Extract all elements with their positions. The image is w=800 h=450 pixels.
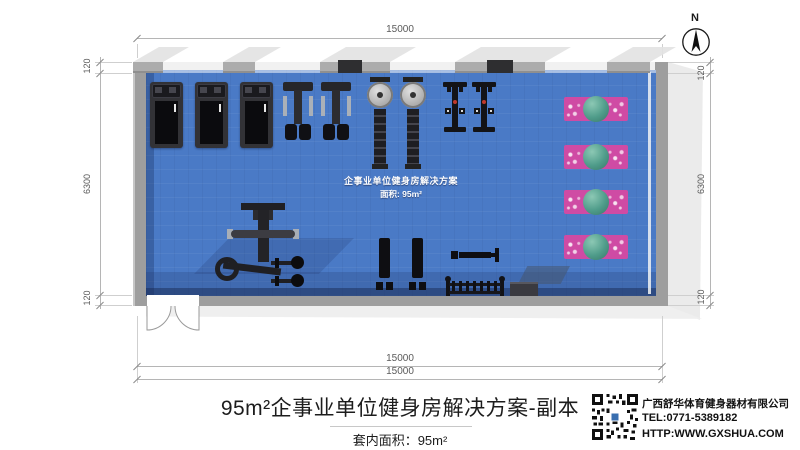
- floor-edge-line: [648, 72, 651, 294]
- wall-beam: [133, 62, 163, 73]
- ac-unit: [338, 60, 362, 73]
- step-platform: [510, 282, 538, 296]
- dimension-value-top: 15000: [360, 24, 440, 35]
- beam-shadow: [607, 47, 676, 62]
- double-door[interactable]: [146, 295, 202, 333]
- north-arrow-icon: [681, 27, 711, 57]
- strength-machine: [321, 82, 351, 144]
- flat-bench: [409, 238, 426, 294]
- dimension-value-bottom-2: 15000: [360, 366, 440, 377]
- exercise-ball: [583, 96, 609, 122]
- dimension-line: [137, 38, 662, 39]
- rowing-machine: [399, 77, 427, 169]
- dimension-value-bottom-1: 15000: [360, 353, 440, 364]
- floor-plan-label: 企事业单位健身房解决方案 面积: 95m²: [301, 174, 501, 200]
- spin-bike: [442, 82, 468, 134]
- wall-3d-face-bottom: [146, 306, 702, 320]
- flat-bench: [376, 238, 393, 294]
- company-website: HTTP:WWW.GXSHUA.COM: [642, 428, 784, 440]
- rowing-machine: [366, 77, 394, 169]
- beam-shadow: [320, 47, 416, 62]
- company-name: 广西舒华体育健身器材有限公司: [642, 396, 789, 411]
- gym-floor: 企事业单位健身房解决方案 面积: 95m²: [146, 70, 656, 296]
- plan-area-label: 套内面积：95m²: [140, 430, 660, 449]
- dimension-value-right-mid: 6300: [696, 169, 706, 199]
- wall-bottom: [146, 296, 655, 306]
- dimension-value-left-mid: 6300: [82, 169, 92, 199]
- dimension-value-right-bottom: 120: [696, 282, 706, 312]
- treadmill: [150, 82, 183, 148]
- treadmill: [195, 82, 228, 148]
- strength-machine: [283, 82, 313, 144]
- spin-bike: [471, 82, 497, 134]
- yoga-mat: [564, 190, 628, 214]
- floor-plan-canvas: 15000 N: [0, 0, 800, 450]
- title-divider: [330, 426, 472, 427]
- yoga-mat: [564, 145, 628, 169]
- beam-shadow: [133, 47, 189, 62]
- beam-shadow: [223, 47, 281, 62]
- multi-station-trainer: [215, 203, 307, 295]
- plan-title: 95m²企事业单位健身房解决方案-副本: [140, 392, 660, 422]
- qr-code: [592, 394, 638, 440]
- dumbbell-rack: [446, 276, 504, 296]
- dimension-value-right-top: 120: [696, 58, 706, 88]
- floor-plan-label-line2: 面积: 95m²: [301, 188, 501, 200]
- dimension-value-left-bottom: 120: [82, 283, 92, 313]
- beam-shadow: [455, 47, 571, 62]
- wall-beam: [607, 62, 650, 73]
- north-label: N: [685, 12, 705, 24]
- wall-beam: [223, 62, 255, 73]
- yoga-mat: [564, 97, 628, 121]
- adjustable-bench: [451, 248, 501, 262]
- dimension-value-left-top: 120: [82, 51, 92, 81]
- exercise-ball: [583, 234, 609, 260]
- wall-right: [655, 62, 668, 306]
- treadmill: [240, 82, 273, 148]
- ac-unit: [487, 60, 513, 73]
- exercise-ball: [583, 144, 609, 170]
- extension-line: [137, 44, 138, 58]
- yoga-mat: [564, 235, 628, 259]
- floor-plan-label-line1: 企事业单位健身房解决方案: [301, 174, 501, 187]
- company-telephone: TEL:0771-5389182: [642, 412, 737, 424]
- exercise-ball: [583, 189, 609, 215]
